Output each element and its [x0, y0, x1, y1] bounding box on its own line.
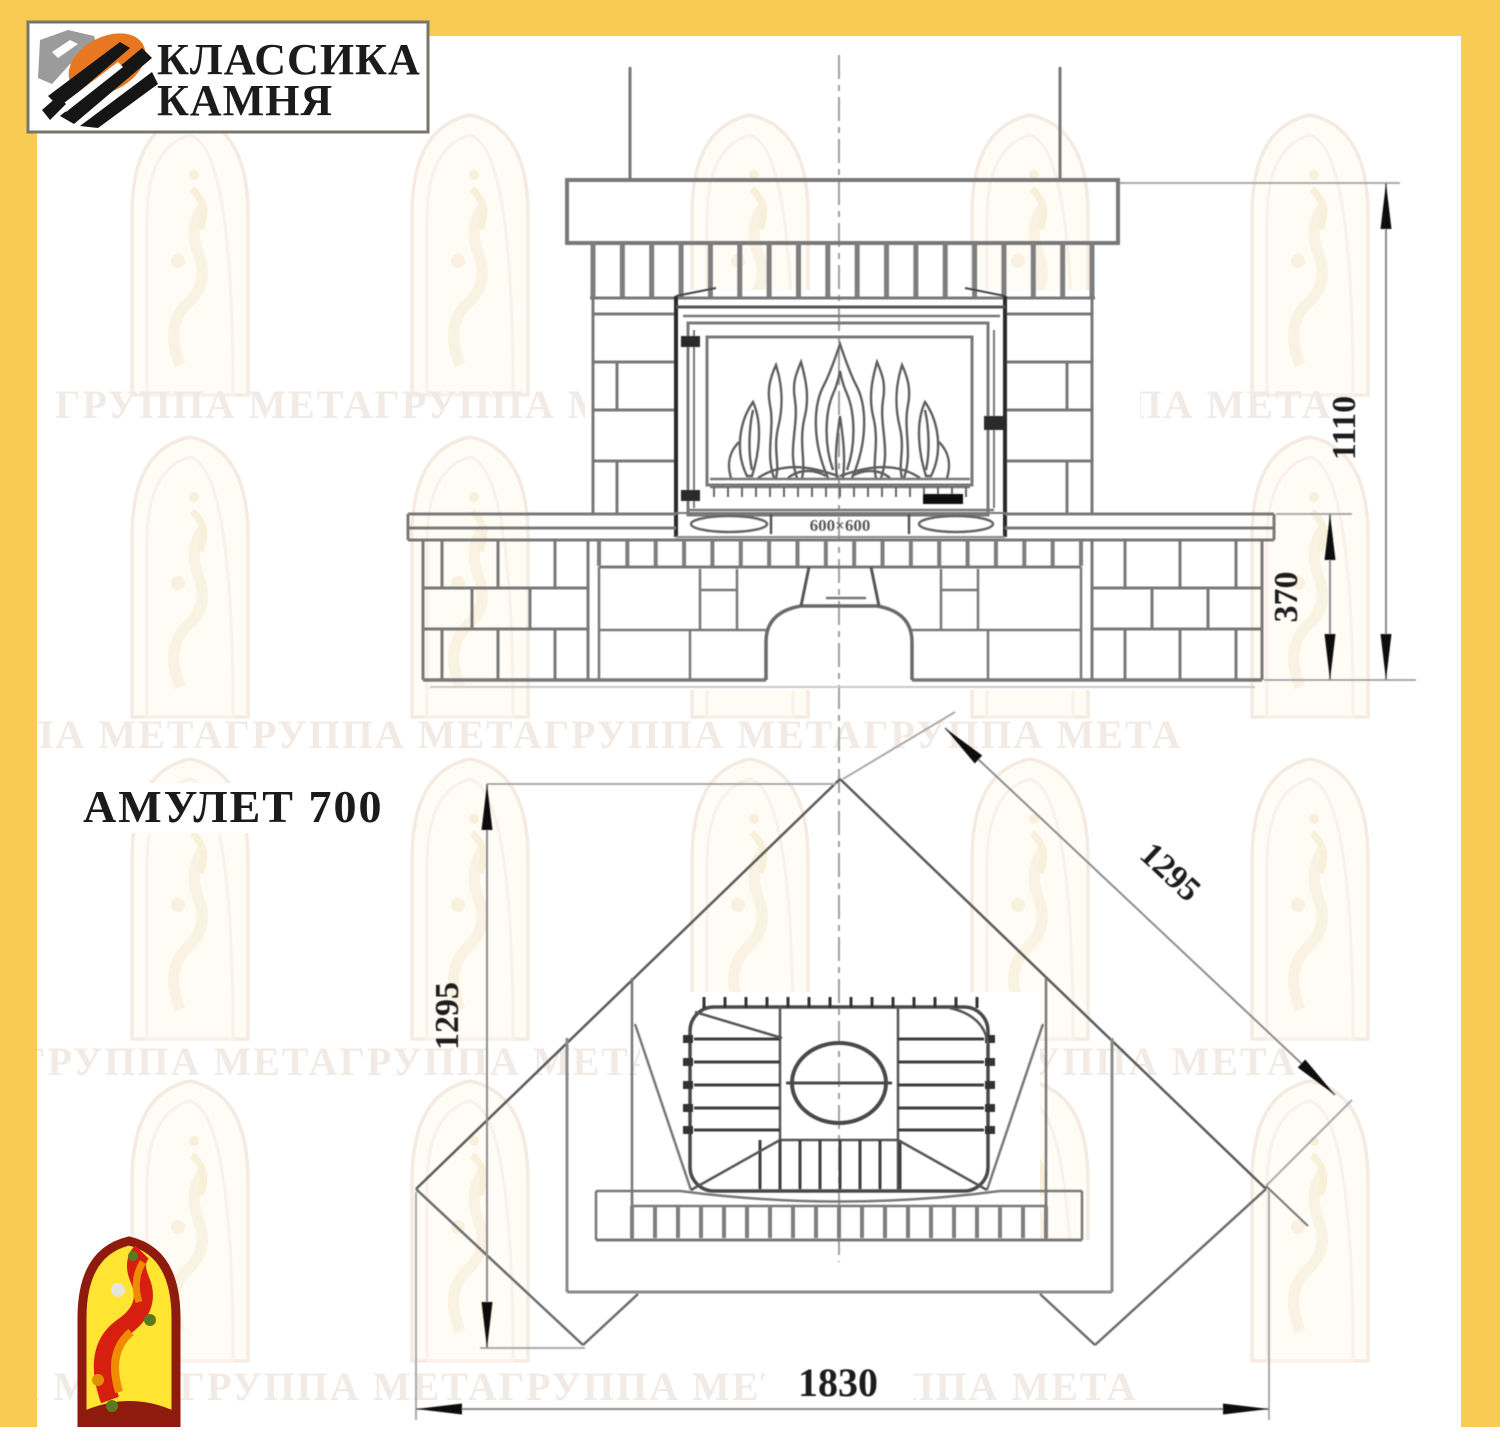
svg-text:АМУЛЕТ 700: АМУЛЕТ 700 — [83, 781, 383, 832]
svg-text:ГРУППА МЕТАГРУППА МЕТАГРУППА М: ГРУППА МЕТАГРУППА МЕТАГРУППА МЕТАГРУППА … — [0, 712, 1182, 757]
svg-text:1110: 1110 — [1326, 396, 1363, 460]
svg-text:КАМНЯ: КАМНЯ — [157, 76, 333, 125]
svg-text:1295: 1295 — [429, 982, 466, 1050]
svg-text:1830: 1830 — [798, 1360, 878, 1405]
svg-text:370: 370 — [1268, 572, 1305, 623]
svg-text:600×600: 600×600 — [810, 516, 871, 535]
